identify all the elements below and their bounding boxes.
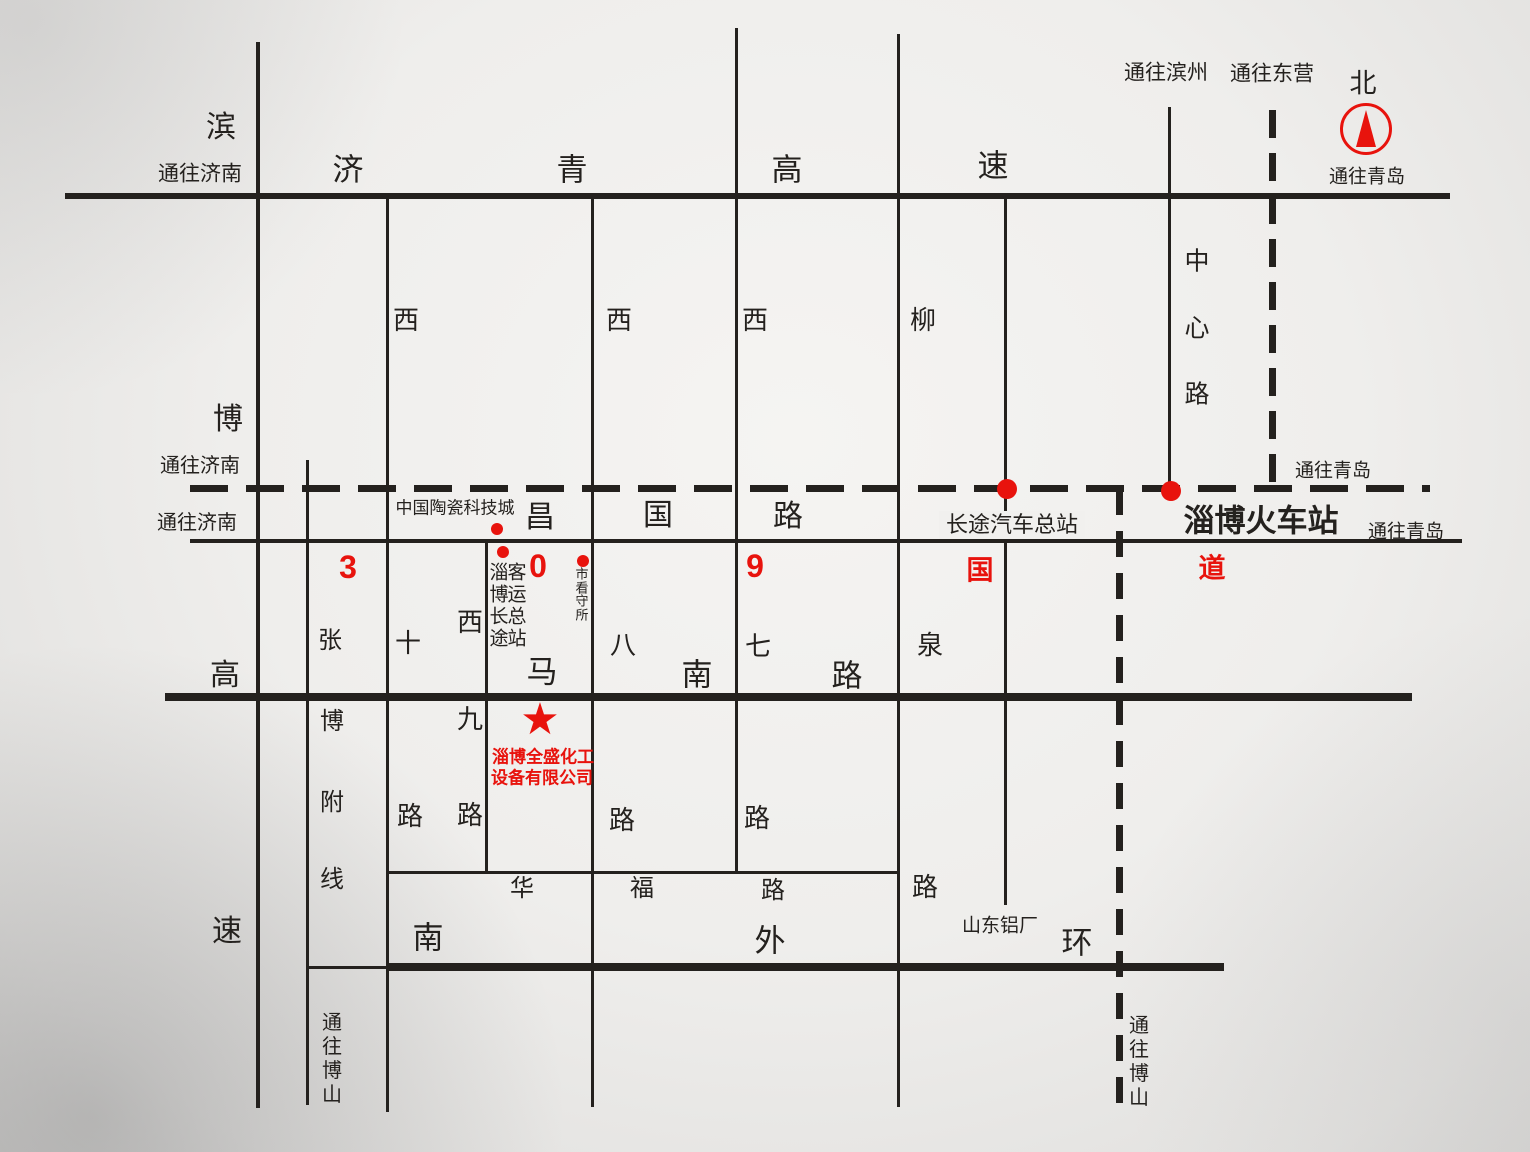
label-dir-boshan-east: 通往博山	[1129, 1014, 1149, 1110]
road-xishi-road	[386, 196, 389, 1112]
compass-needle-icon	[1356, 110, 1376, 147]
label-changguo-char-1: 昌	[525, 503, 555, 533]
label-nanwaihuan-char-3: 环	[1062, 928, 1093, 959]
zibo-location-map: 济青高速滨博高速昌国路马南路南外环华福路张博附线西十路西九路西八路西七路柳泉路中…	[0, 0, 1530, 1152]
label-liuquan-char-3: 路	[912, 874, 938, 900]
label-xiqi-char-2: 七	[745, 633, 771, 659]
road-huanshan-dashed-road	[1116, 489, 1123, 1110]
label-binbo-char-2: 博	[213, 405, 243, 435]
road-jiqing-expressway	[65, 193, 1450, 199]
road-dongying-dashed-road	[1269, 110, 1276, 492]
label-xishi-char-3: 路	[397, 803, 423, 829]
dot-ceramics-city	[491, 523, 503, 535]
label-coach-station-col-2-char: 站	[507, 628, 526, 650]
label-binbo-char-3: 高	[210, 661, 240, 691]
label-jiqing-char-1: 济	[333, 155, 364, 186]
label-detention-center-char: 所	[575, 609, 588, 623]
road-nanwaihuan-road	[386, 963, 1224, 971]
label-nanwaihuan-char-1: 南	[413, 923, 444, 954]
label-dir-dongying: 通往东营	[1230, 64, 1314, 85]
label-liuquan-char-1: 柳	[910, 307, 936, 333]
compass-north-icon	[1340, 103, 1392, 155]
label-company-name-line-1: 淄博全盛化工	[492, 749, 594, 766]
label-dir-qingdao-changguo: 通往青岛	[1368, 523, 1444, 542]
label-jiqing-char-4: 速	[978, 151, 1009, 182]
road-manan-road	[165, 693, 1412, 701]
road-bus-terminal-road	[1004, 196, 1007, 905]
label-xijiu-char-2: 九	[457, 706, 483, 732]
road-xiqi-road	[735, 28, 738, 873]
label-binbo-char-1: 滨	[206, 113, 236, 143]
label-shandong-aluminum: 山东铝厂	[962, 917, 1038, 936]
road-zhangbo-branch-line	[306, 460, 309, 1105]
label-zhangbo-char-2: 博	[320, 710, 344, 734]
label-detention-center-char: 守	[575, 595, 588, 609]
label-zhongxin-char-1: 中	[1184, 250, 1209, 275]
label-g309-digit-9: 9	[746, 550, 764, 582]
label-dir-qingdao-g309: 通往青岛	[1295, 462, 1371, 481]
label-nanwaihuan-char-2: 外	[755, 926, 786, 957]
label-xiba-char-1: 西	[606, 307, 632, 333]
label-changguo-char-2: 国	[643, 501, 673, 531]
label-jiqing-char-3: 高	[772, 155, 803, 186]
label-xiba-char-2: 八	[610, 632, 636, 658]
label-detention-center-char: 市	[575, 568, 588, 582]
label-dir-boshan-west-char: 通	[322, 1011, 342, 1035]
label-coach-station-col-2-char: 运	[507, 584, 526, 606]
road-nanwaihuan-west-segment	[308, 966, 388, 969]
label-north-label: 北	[1350, 71, 1377, 98]
label-xishi-char-1: 西	[393, 307, 419, 333]
label-manan-char-2: 南	[682, 660, 713, 691]
label-detention-center: 市看守所	[575, 568, 588, 623]
label-dir-boshan-west-char: 博	[322, 1059, 342, 1083]
road-binbo-expressway	[256, 42, 260, 1108]
road-zhongxin-road	[1168, 107, 1171, 491]
label-g309-digit-0: 0	[529, 550, 547, 582]
label-dir-boshan-west-char: 山	[322, 1083, 342, 1107]
label-dir-binzhou: 通往滨州	[1124, 63, 1208, 84]
label-huafu-char-2: 福	[630, 877, 654, 901]
label-dir-jinan-jiqing: 通往济南	[158, 164, 242, 185]
dot-coach-station	[497, 546, 509, 558]
label-xiqi-char-1: 西	[742, 307, 768, 333]
label-dir-jinan-changguo: 通往济南	[157, 513, 237, 533]
road-xiba-road	[591, 196, 594, 1107]
road-xijiu-road	[485, 539, 488, 873]
label-dir-boshan-east-char: 往	[1129, 1038, 1149, 1062]
label-xiqi-char-3: 路	[744, 805, 770, 831]
label-coach-station-col-1-char: 长	[489, 606, 508, 628]
company-location-star: ★	[520, 698, 559, 742]
label-dir-boshan-east-char: 通	[1129, 1014, 1149, 1038]
label-dir-boshan-east-char: 博	[1129, 1062, 1149, 1086]
label-dir-boshan-west-char: 往	[322, 1035, 342, 1059]
label-coach-station-col-1: 淄博长途	[489, 562, 508, 649]
dot-detention-center	[577, 555, 589, 567]
label-xishi-char-2: 十	[395, 630, 421, 656]
label-xijiu-char-1: 西	[457, 609, 483, 635]
label-jiqing-char-2: 青	[557, 155, 588, 186]
dot-bus-terminal	[997, 479, 1017, 499]
label-coach-station-col-1-char: 博	[489, 584, 508, 606]
label-zhongxin-char-2: 心	[1184, 317, 1209, 342]
label-coach-station-col-2-char: 总	[507, 606, 526, 628]
label-dir-boshan-west: 通往博山	[322, 1011, 342, 1107]
label-bus-terminal: 长途汽车总站	[939, 511, 1085, 539]
label-zhangbo-char-1: 张	[318, 629, 342, 653]
label-coach-station-col-2: 客运总站	[507, 562, 526, 649]
label-xijiu-char-3: 路	[457, 802, 483, 828]
label-huafu-char-3: 路	[761, 879, 785, 903]
label-g309-char-dao: 道	[1199, 556, 1226, 583]
road-changguo-road	[190, 539, 1462, 543]
label-ceramics-city: 中国陶瓷科技城	[396, 500, 515, 517]
label-liuquan-char-2: 泉	[917, 632, 943, 658]
label-manan-char-1: 马	[527, 657, 558, 688]
label-railway-station: 淄博火车站	[1184, 506, 1339, 537]
label-zhangbo-char-3: 附	[320, 791, 344, 815]
road-g309-national-road	[190, 485, 1430, 492]
label-g309-digit-3: 3	[339, 551, 357, 583]
label-detention-center-char: 看	[575, 581, 588, 595]
label-zhongxin-char-3: 路	[1184, 383, 1209, 408]
label-zhangbo-char-4: 线	[320, 868, 344, 892]
label-dir-qingdao-compass: 通往青岛	[1329, 168, 1405, 187]
label-company-name-line-2: 设备有限公司	[491, 770, 593, 787]
label-coach-station-col-2-char: 客	[507, 562, 526, 584]
label-huafu-char-1: 华	[510, 877, 534, 901]
label-coach-station-col-1-char: 途	[489, 628, 508, 650]
dot-railway-station	[1161, 481, 1181, 501]
label-changguo-char-3: 路	[773, 502, 803, 532]
label-manan-char-3: 路	[832, 661, 863, 692]
road-liuquan-road	[897, 34, 900, 1107]
label-g309-char-guo: 国	[967, 558, 994, 585]
label-binbo-char-4: 速	[212, 917, 242, 947]
label-dir-jinan-g309: 通往济南	[160, 456, 240, 476]
label-xiba-char-3: 路	[609, 807, 635, 833]
label-dir-boshan-east-char: 山	[1129, 1086, 1149, 1110]
label-coach-station-col-1-char: 淄	[489, 562, 508, 584]
road-huafu-road	[386, 871, 899, 874]
